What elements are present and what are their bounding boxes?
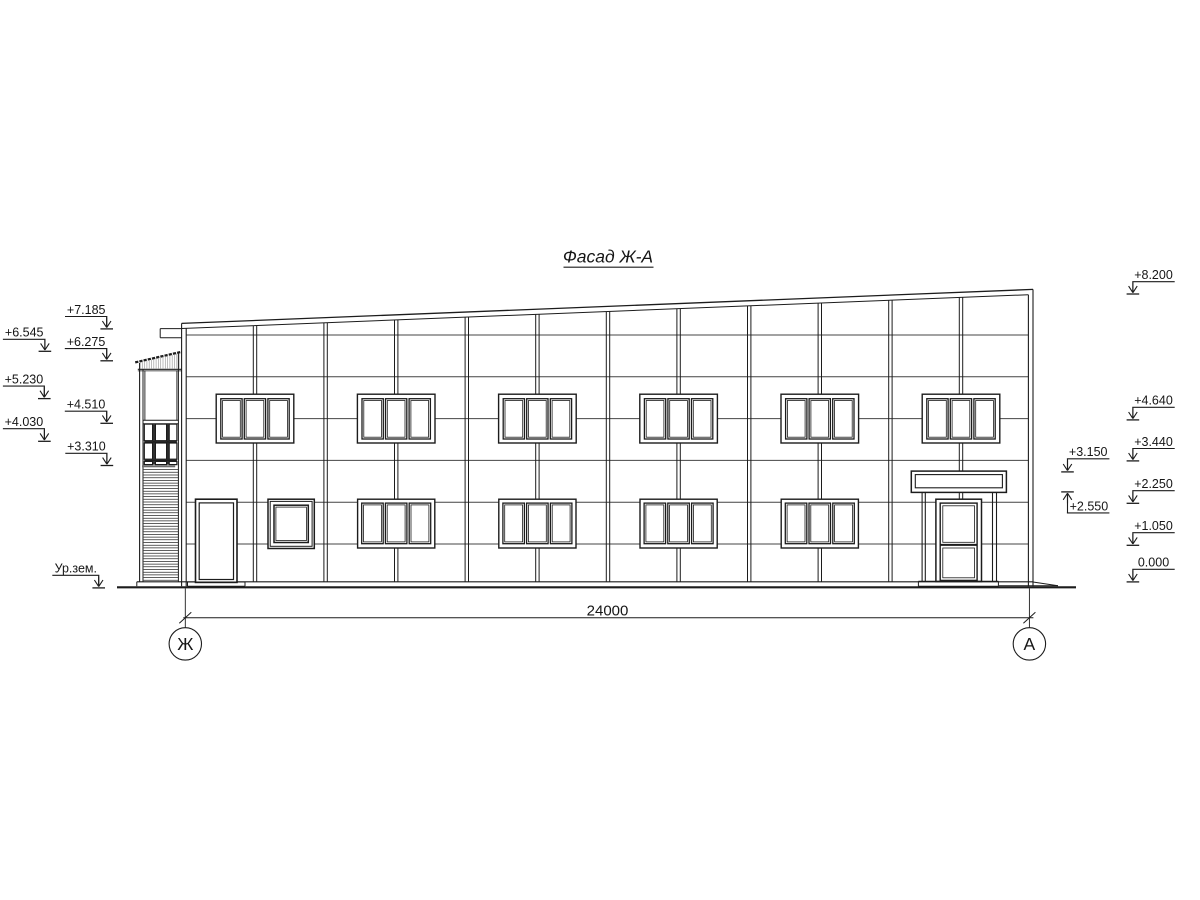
svg-text:+8.200: +8.200 bbox=[1134, 268, 1173, 282]
svg-text:+6.275: +6.275 bbox=[67, 335, 106, 349]
svg-text:+6.545: +6.545 bbox=[5, 326, 44, 340]
svg-text:+4.510: +4.510 bbox=[67, 398, 106, 412]
svg-text:24000: 24000 bbox=[587, 602, 629, 619]
svg-text:+2.550: +2.550 bbox=[1070, 500, 1109, 514]
svg-text:+1.050: +1.050 bbox=[1134, 519, 1173, 533]
svg-text:+4.640: +4.640 bbox=[1134, 394, 1173, 408]
svg-text:+7.185: +7.185 bbox=[67, 303, 106, 317]
svg-text:Фасад Ж-А: Фасад Ж-А bbox=[563, 247, 653, 267]
svg-text:+4.030: +4.030 bbox=[5, 415, 44, 429]
svg-text:+3.310: +3.310 bbox=[67, 440, 106, 454]
svg-text:+3.440: +3.440 bbox=[1134, 435, 1173, 449]
svg-text:+3.150: +3.150 bbox=[1069, 445, 1108, 459]
svg-text:0.000: 0.000 bbox=[1138, 556, 1169, 570]
svg-text:+2.250: +2.250 bbox=[1134, 477, 1173, 491]
svg-text:А: А bbox=[1024, 634, 1036, 654]
svg-text:Ур.зем.: Ур.зем. bbox=[55, 562, 97, 576]
svg-text:Ж: Ж bbox=[177, 634, 193, 654]
svg-text:+5.230: +5.230 bbox=[5, 373, 44, 387]
